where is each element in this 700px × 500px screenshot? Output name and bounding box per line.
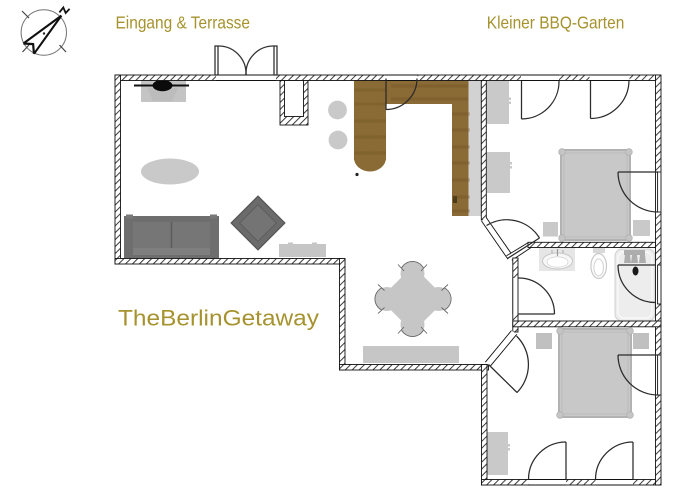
svg-text:Kleiner BBQ-Garten: Kleiner BBQ-Garten bbox=[487, 13, 625, 33]
svg-text:TheBerlinGetaway: TheBerlinGetaway bbox=[118, 306, 319, 331]
svg-text:Eingang & Terrasse: Eingang & Terrasse bbox=[116, 13, 251, 33]
